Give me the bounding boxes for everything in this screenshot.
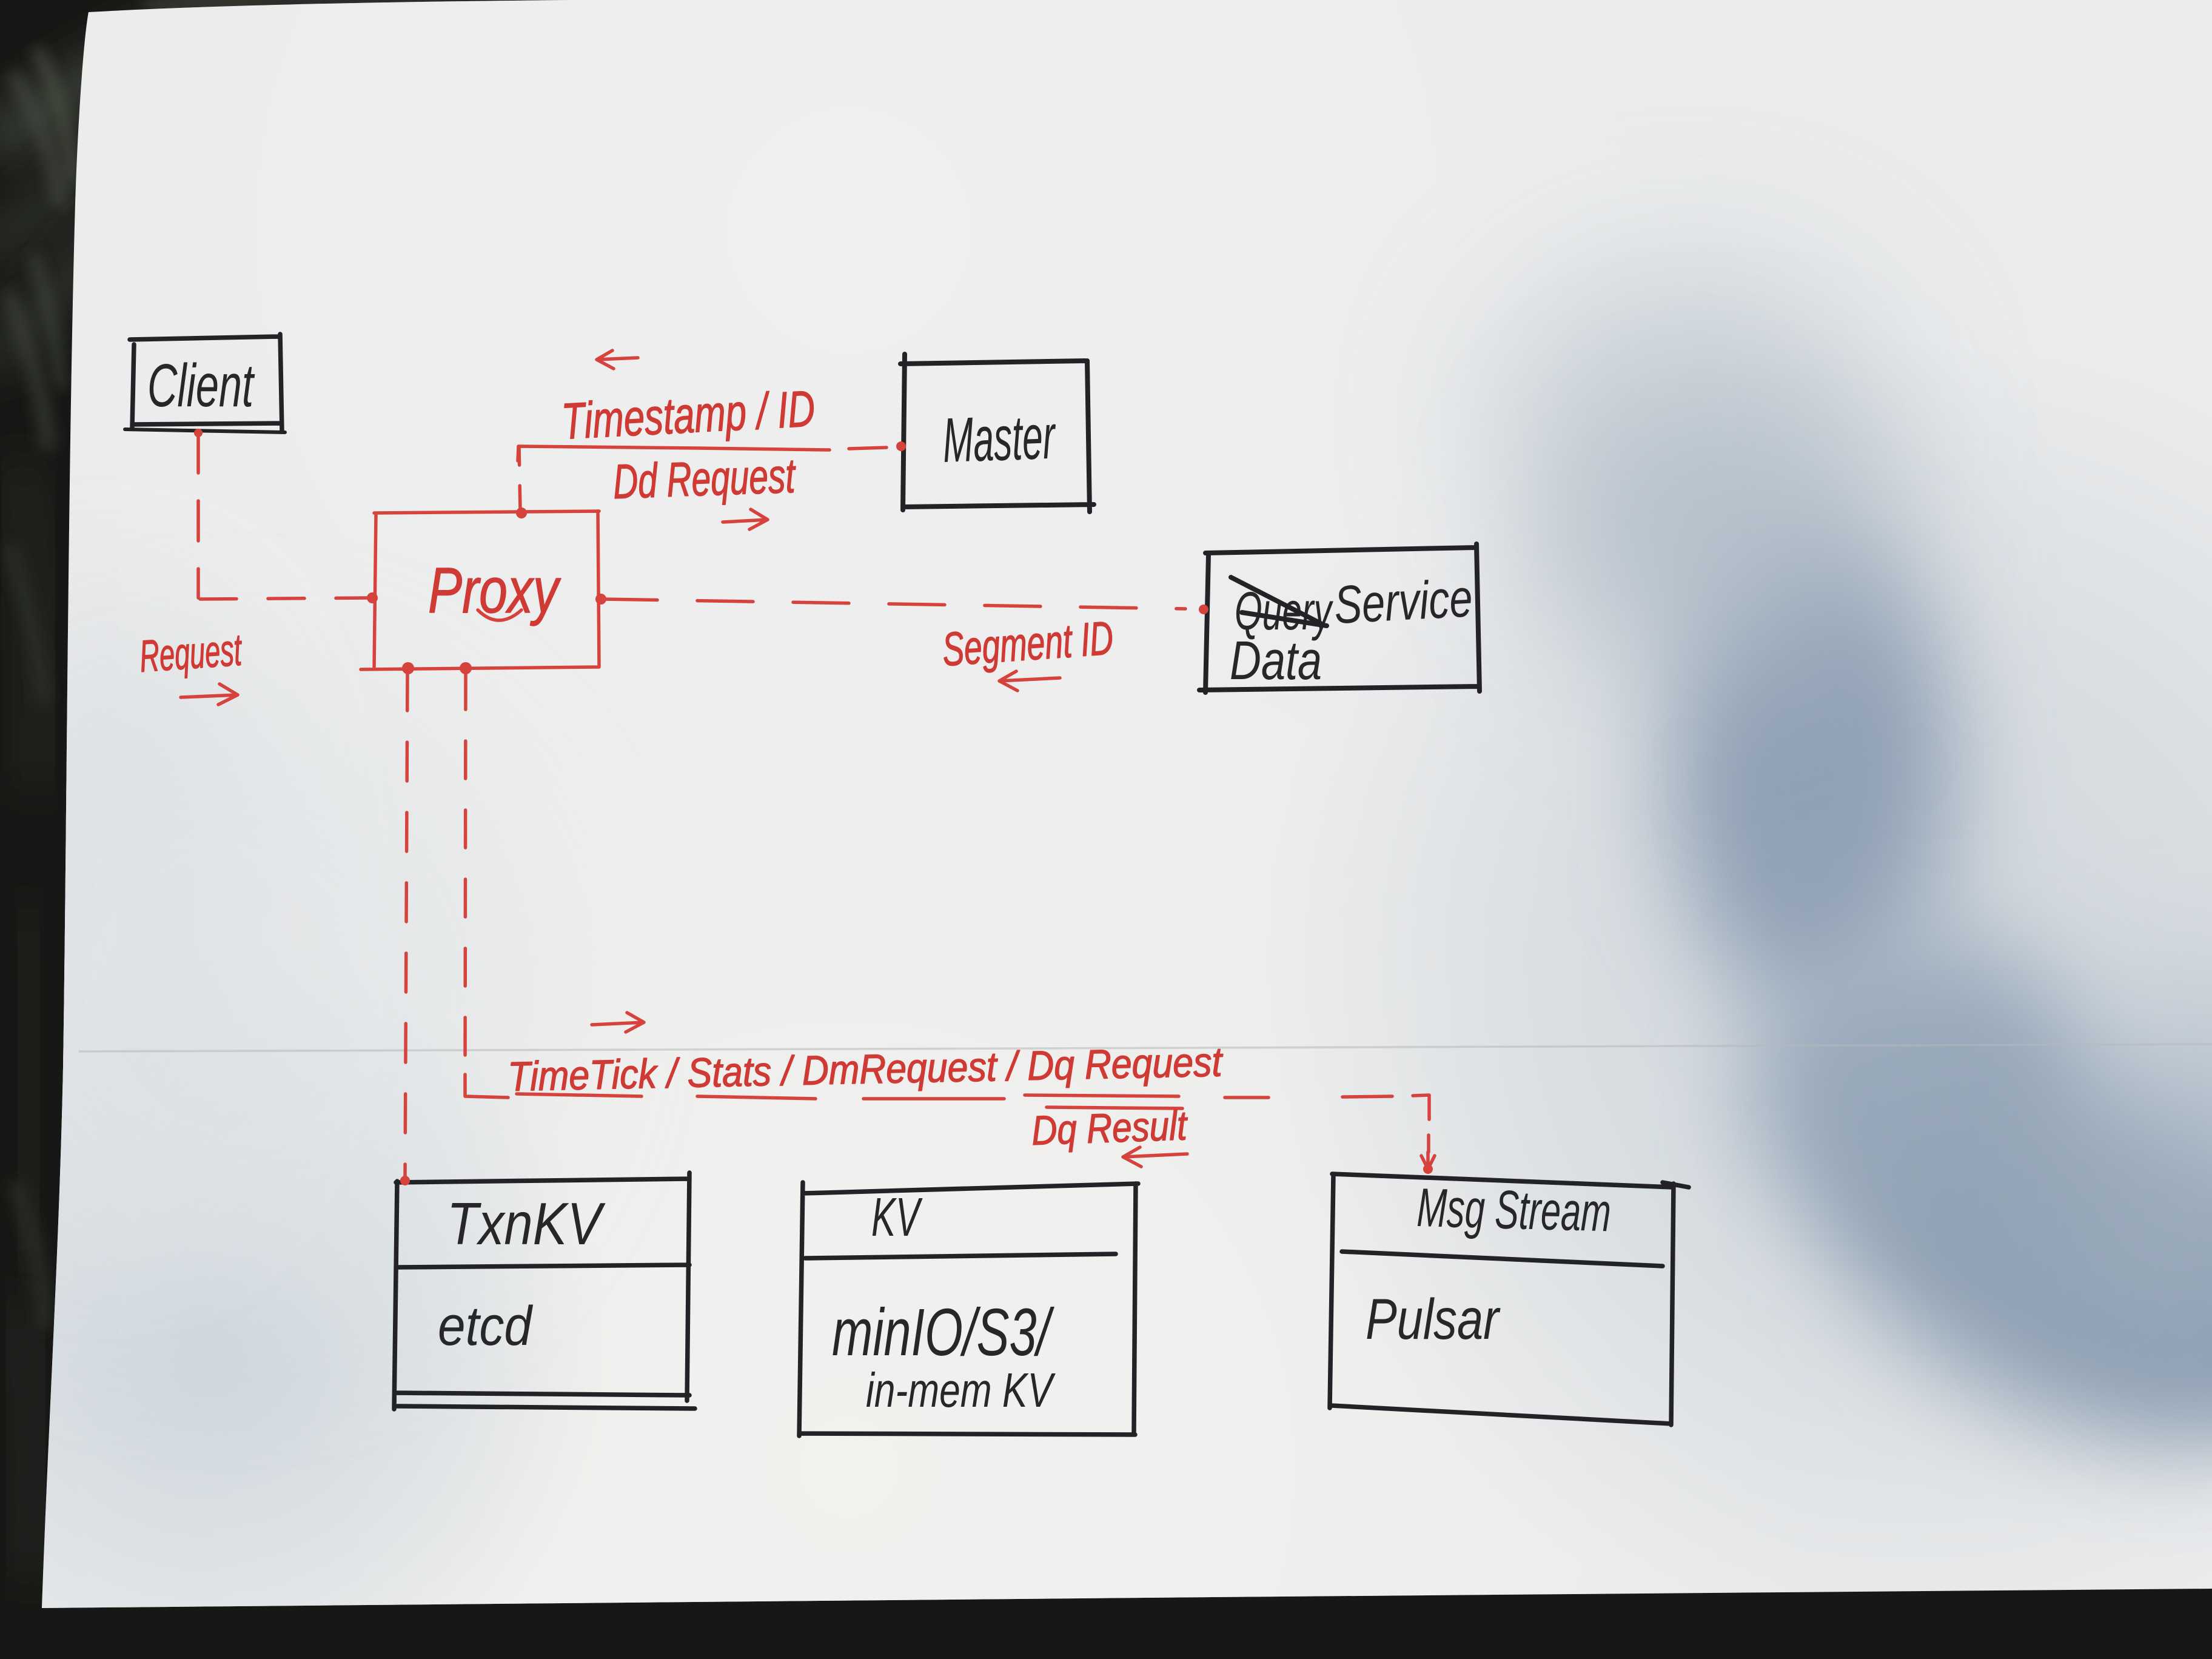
svg-text:etcd: etcd	[438, 1295, 534, 1357]
svg-text:Msg Stream: Msg Stream	[1416, 1178, 1612, 1243]
svg-text:Request: Request	[138, 624, 244, 682]
svg-text:Service: Service	[1333, 568, 1474, 635]
svg-text:in-mem KV: in-mem KV	[866, 1363, 1056, 1417]
svg-text:Pulsar: Pulsar	[1366, 1287, 1501, 1352]
svg-text:Dd Request: Dd Request	[612, 449, 797, 509]
svg-text:minIO/S3/: minIO/S3/	[832, 1295, 1055, 1370]
svg-text:Dq Result: Dq Result	[1031, 1102, 1189, 1154]
svg-text:Data: Data	[1230, 631, 1322, 691]
svg-text:Master: Master	[942, 402, 1057, 476]
svg-text:TxnKV: TxnKV	[447, 1190, 606, 1257]
svg-text:Proxy: Proxy	[428, 555, 561, 626]
svg-text:KV: KV	[871, 1187, 923, 1248]
svg-text:Client: Client	[147, 352, 255, 420]
